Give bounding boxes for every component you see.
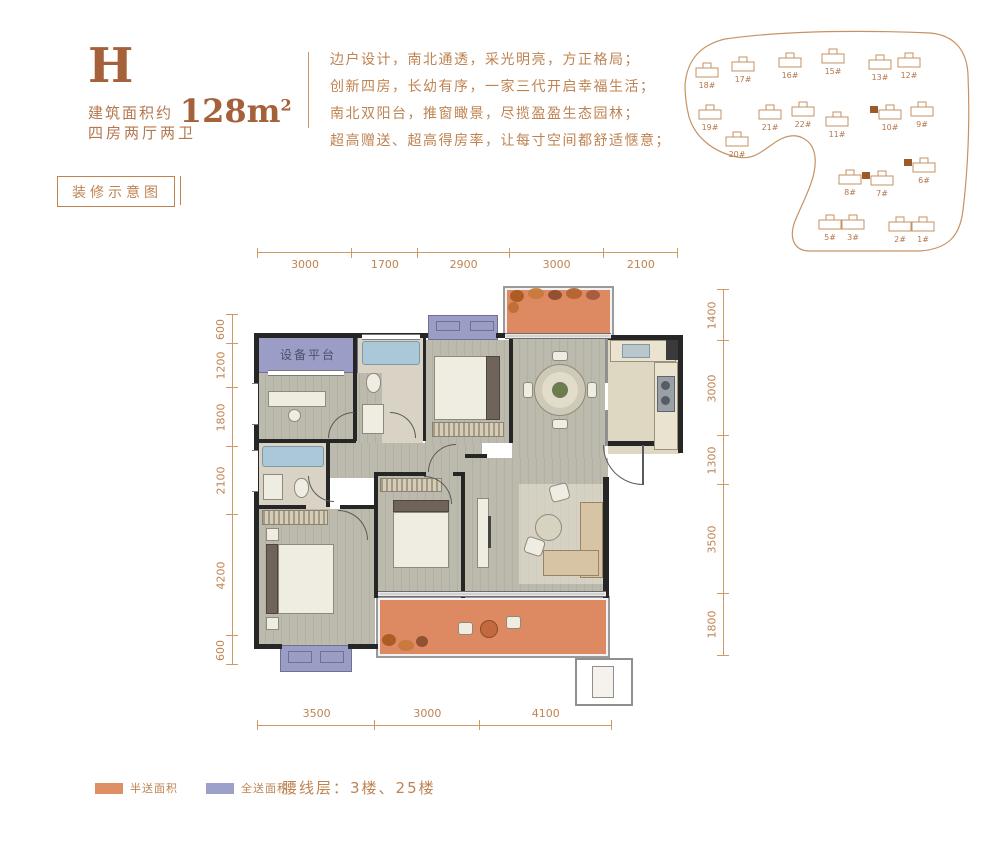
svg-text:13#: 13#: [872, 73, 889, 82]
building-9: 9#: [911, 102, 933, 129]
balcony-plant: [416, 636, 428, 647]
unit-layout: 四房两厅两卫: [88, 122, 196, 143]
bed-headboard: [486, 356, 500, 420]
bed: [278, 544, 334, 614]
dim-value: 1400: [705, 302, 718, 330]
dim-value: 3000: [543, 258, 571, 271]
building-20: 20#: [726, 132, 748, 159]
burner: [661, 396, 670, 405]
highlighted-unit-marker: [862, 172, 870, 179]
bay-planter: [470, 321, 494, 331]
building-21: 21#: [759, 105, 781, 132]
bed-headboard: [266, 544, 278, 614]
header-divider: [308, 52, 309, 128]
bay-planter: [288, 651, 312, 663]
dim-value: 2900: [450, 258, 478, 271]
building-1: 1#: [912, 217, 934, 244]
dim-chain-left: 6001200180021004200600: [209, 315, 233, 665]
dining-chair: [587, 382, 597, 398]
building-12: 12#: [898, 53, 920, 80]
building-13: 13#: [869, 55, 891, 82]
building-15: 15#: [822, 49, 844, 76]
building-8: 8#: [839, 170, 861, 197]
dim-chain-right: 14003000130035001800: [700, 290, 724, 656]
wardrobe: [262, 510, 328, 525]
dim-value: 1700: [371, 258, 399, 271]
dining-chair: [552, 351, 568, 361]
dim-value: 3000: [291, 258, 319, 271]
wall: [423, 338, 426, 441]
selling-point-3: 南北双阳台，推窗瞰景，尽揽盈盈生态园林；: [330, 101, 671, 128]
wall: [374, 472, 378, 598]
wall: [254, 505, 306, 509]
half-gift-swatch: [95, 783, 123, 794]
svg-text:12#: 12#: [901, 71, 918, 80]
desk: [268, 391, 326, 407]
bay-planter: [436, 321, 460, 331]
balcony-plant: [566, 288, 582, 299]
svg-text:1#: 1#: [917, 235, 929, 244]
bed: [393, 512, 449, 568]
site-plan-buildings: 18#17#16#15#13#12#19#21#22#11#10#9#20#8#…: [696, 49, 935, 244]
balcony-sliding-door: [505, 333, 611, 339]
highlighted-unit-marker: [904, 159, 912, 166]
waistline-note: 腰线层：3楼、25楼: [282, 777, 436, 798]
building-19: 19#: [699, 105, 721, 132]
dining-chair: [552, 419, 568, 429]
building-3: 3#: [842, 215, 864, 242]
decoration-tag-tick: [180, 176, 181, 205]
dim-chain-top: 30001700290030002100: [258, 252, 678, 275]
building-11: 11#: [826, 112, 848, 139]
balcony-sliding-door: [378, 591, 606, 597]
selling-point-1: 边户设计，南北通透，采光明亮，方正格局；: [330, 47, 671, 74]
area-prefix: 建筑面积约: [88, 104, 173, 122]
site-plan-map: 18#17#16#15#13#12#19#21#22#11#10#9#20#8#…: [675, 25, 975, 260]
bed: [434, 356, 488, 420]
building-10: 10#: [870, 105, 901, 132]
washbasin: [263, 474, 283, 500]
coffee-table: [535, 514, 562, 541]
dim-value: 4200: [214, 562, 227, 590]
highlighted-unit-marker: [870, 106, 878, 113]
balcony-plant: [586, 290, 600, 300]
dim-value: 1200: [214, 352, 227, 380]
selling-points: 边户设计，南北通透，采光明亮，方正格局； 创新四房，长幼有序，一家三代开启幸福生…: [330, 47, 671, 155]
selling-point-2: 创新四房，长幼有序，一家三代开启幸福生活；: [330, 74, 671, 101]
tv: [488, 516, 491, 548]
wall: [605, 338, 608, 383]
unit-name: H: [88, 42, 133, 90]
building-5: 5#: [819, 215, 841, 242]
table-plant: [552, 382, 568, 398]
dim-value: 600: [214, 640, 227, 661]
selling-point-4: 超高赠送、超高得房率，让每寸空间都舒适惬意；: [330, 128, 671, 155]
entry-door-arc: [603, 445, 643, 485]
kitchen-sink: [622, 344, 650, 358]
wardrobe: [432, 422, 504, 437]
wall: [461, 472, 465, 598]
nightstand: [266, 528, 279, 541]
svg-text:21#: 21#: [762, 123, 779, 132]
dim-value: 1800: [214, 403, 227, 431]
dim-value: 2100: [627, 258, 655, 271]
bay-planter: [320, 651, 344, 663]
balcony-chair: [458, 622, 473, 635]
svg-text:11#: 11#: [829, 130, 846, 139]
ac-unit: [592, 666, 614, 698]
corner-cabinet: [666, 340, 678, 360]
building-22: 22#: [792, 102, 814, 129]
building-6: 6#: [904, 158, 935, 185]
building-16: 16#: [779, 53, 801, 80]
svg-text:3#: 3#: [847, 233, 859, 242]
floor-plan: 设备平台: [240, 278, 700, 718]
dim-value: 600: [214, 319, 227, 340]
sofa-chaise: [543, 550, 599, 576]
svg-text:17#: 17#: [735, 75, 752, 84]
dim-value: 3500: [705, 525, 718, 553]
balcony-plant: [510, 290, 524, 302]
equipment-platform: 设备平台: [258, 335, 358, 373]
wall: [340, 505, 375, 509]
wall: [254, 644, 282, 649]
svg-text:7#: 7#: [876, 189, 888, 198]
balcony-plant: [508, 302, 519, 313]
toilet: [366, 373, 381, 393]
wall: [605, 410, 608, 446]
svg-text:2#: 2#: [894, 235, 906, 244]
svg-text:19#: 19#: [702, 123, 719, 132]
entry-door-leaf: [642, 445, 644, 485]
bathtub: [262, 446, 324, 467]
svg-text:22#: 22#: [795, 120, 812, 129]
svg-text:6#: 6#: [918, 176, 930, 185]
wall: [603, 477, 609, 598]
building-7: 7#: [862, 171, 893, 198]
window: [362, 334, 420, 340]
dim-value: 3000: [705, 375, 718, 403]
svg-text:10#: 10#: [882, 123, 899, 132]
wall: [374, 472, 426, 476]
svg-text:8#: 8#: [844, 188, 856, 197]
window: [268, 370, 344, 376]
dining-chair: [523, 382, 533, 398]
dim-value: 1300: [705, 447, 718, 475]
building-17: 17#: [732, 57, 754, 84]
dim-value: 2100: [214, 467, 227, 495]
svg-text:15#: 15#: [825, 67, 842, 76]
wall: [678, 335, 683, 453]
wall: [465, 454, 487, 458]
full-gift-swatch: [206, 783, 234, 794]
bathtub: [362, 341, 420, 365]
wall: [509, 335, 513, 443]
window: [252, 450, 258, 492]
nightstand: [266, 617, 279, 630]
desk-chair: [288, 409, 301, 422]
decoration-tag: 装修示意图: [57, 176, 175, 207]
building-2: 2#: [889, 217, 911, 244]
balcony-plant: [548, 290, 562, 300]
window: [252, 383, 258, 425]
dim-value: 1800: [705, 611, 718, 639]
burner: [661, 381, 670, 390]
svg-text:20#: 20#: [729, 150, 746, 159]
svg-text:16#: 16#: [782, 71, 799, 80]
balcony-plant: [528, 288, 544, 299]
svg-text:5#: 5#: [824, 233, 836, 242]
toilet: [294, 478, 309, 498]
balcony-plant: [398, 640, 414, 651]
svg-text:18#: 18#: [699, 81, 716, 90]
balcony-plant: [382, 634, 396, 646]
half-gift-label: 半送面积: [130, 780, 178, 796]
wall: [254, 439, 356, 443]
balcony-chair: [506, 616, 521, 629]
balcony-table: [480, 620, 498, 638]
area-value: 128m2: [180, 92, 292, 130]
svg-text:9#: 9#: [916, 120, 928, 129]
wall: [348, 644, 378, 649]
building-18: 18#: [696, 63, 718, 90]
washbasin: [362, 404, 384, 434]
